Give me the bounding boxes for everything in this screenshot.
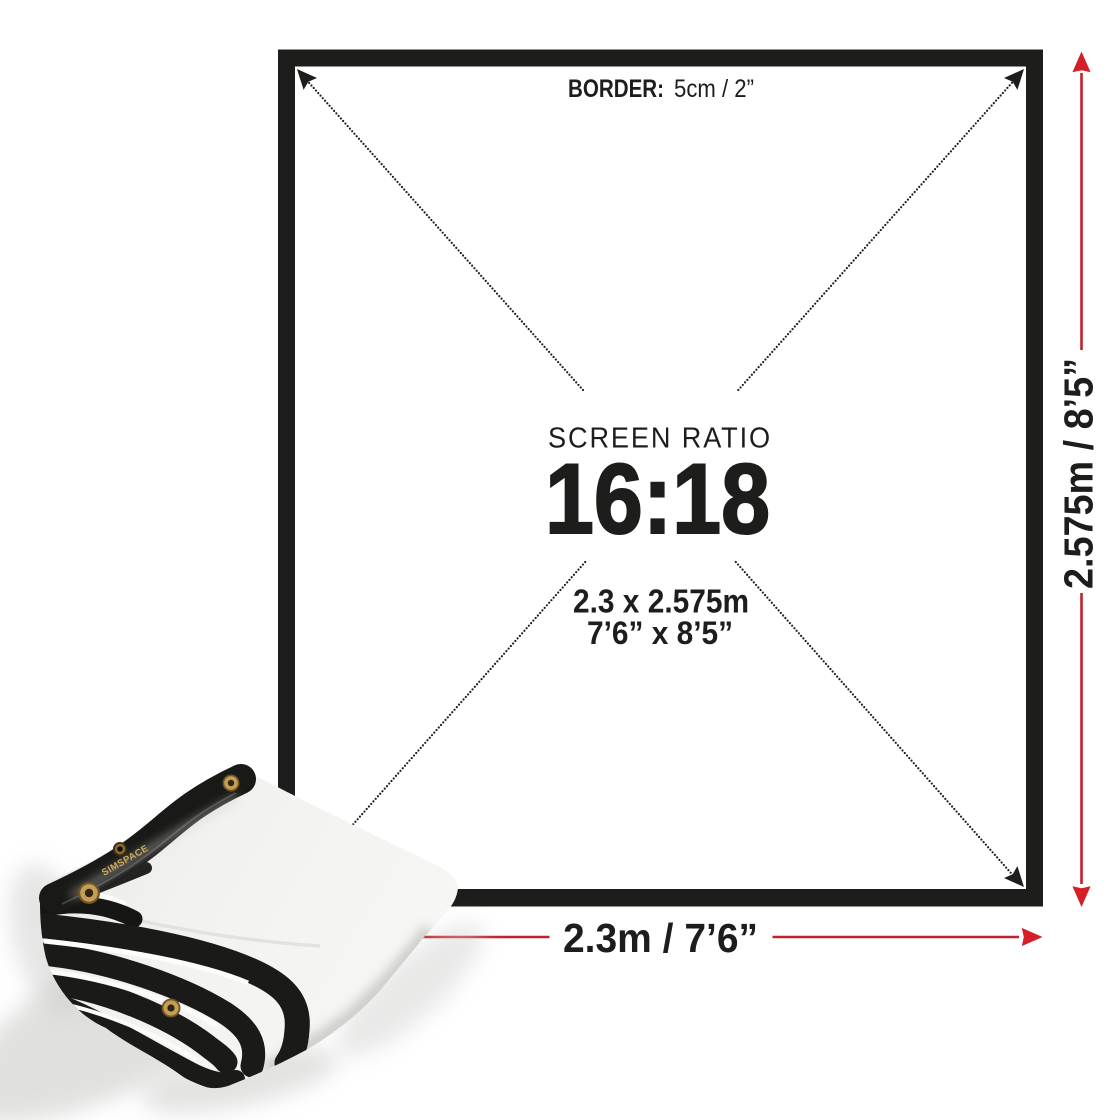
- svg-text:16:18: 16:18: [545, 444, 770, 555]
- svg-text:BORDER:: BORDER:: [568, 75, 664, 103]
- svg-text:2.3m / 7’6”: 2.3m / 7’6”: [563, 915, 758, 961]
- svg-text:5cm / 2”: 5cm / 2”: [674, 75, 754, 103]
- svg-text:7’6” x 8’5”: 7’6” x 8’5”: [587, 615, 733, 651]
- svg-text:2.575m / 8’5”: 2.575m / 8’5”: [1056, 358, 1102, 589]
